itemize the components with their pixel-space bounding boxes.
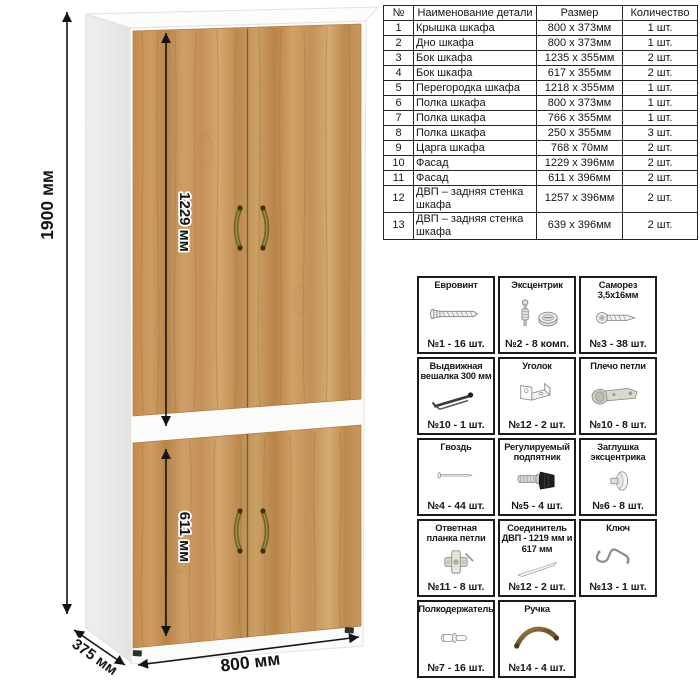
self-tapping-screw-icon	[587, 301, 649, 338]
cell-name: Перегородка шкафа	[414, 81, 537, 96]
hardware-item-title: Евровинт	[434, 280, 477, 290]
cell-qty: 1 шт.	[623, 81, 698, 96]
table-row: 13ДВП – задняя стенка шкафа639 х 396мм2 …	[384, 212, 698, 239]
table-row: 9Царга шкафа768 х 70мм2 шт.	[384, 141, 698, 156]
cell-num: 3	[384, 51, 414, 66]
cabinet-foot-right	[345, 627, 354, 634]
hardware-item-corner-bracket: Уголок №12 - 2 шт.	[498, 357, 576, 435]
hardware-item-cam-cover: Заглушка эксцентрика №6 - 8 шт.	[579, 438, 657, 516]
handle-icon	[506, 614, 568, 662]
cell-num: 4	[384, 66, 414, 81]
table-row: 3Бок шкафа1235 х 355мм2 шт.	[384, 51, 698, 66]
hardware-item-title: Регулируемый подпятник	[501, 442, 573, 463]
hardware-item-title: Ответная планка петли	[420, 523, 492, 544]
cell-num: 8	[384, 126, 414, 141]
assembly-sheet: 1900 мм 1229 мм 611 мм 800 мм 375 мм № Н…	[0, 0, 700, 700]
cell-size: 800 х 373мм	[537, 36, 623, 51]
header-qty: Количество	[623, 6, 698, 21]
hardware-grid: Евровинт №1 - 16 шт. Эксцентрик	[417, 276, 657, 678]
cell-num: 10	[384, 156, 414, 171]
cell-num: 2	[384, 36, 414, 51]
cell-num: 7	[384, 111, 414, 126]
hardware-item-title: Ручка	[524, 604, 550, 614]
hardware-item-key: Ключ №13 - 1 шт.	[579, 519, 657, 597]
eccentric-cam-icon	[505, 290, 569, 338]
cabinet-foot-left	[133, 650, 142, 657]
cell-qty: 3 шт.	[623, 126, 698, 141]
corner-bracket-icon	[507, 371, 567, 419]
adjustable-foot-icon	[507, 463, 567, 500]
cell-name: Полка шкафа	[414, 111, 537, 126]
cell-size: 800 х 373мм	[537, 96, 623, 111]
hardware-item-title: Эксцентрик	[511, 280, 562, 290]
hardware-item-caption: №11 - 8 шт.	[428, 581, 485, 593]
hardware-item-title: Ключ	[606, 523, 630, 533]
hardware-item-hdf-connector: Соединитель ДВП - 1219 мм и 617 мм №12 -…	[498, 519, 576, 597]
pullout-hanger-icon	[424, 382, 488, 419]
cell-qty: 1 шт.	[623, 21, 698, 36]
cell-size: 1235 х 355мм	[537, 51, 623, 66]
cell-num: 5	[384, 81, 414, 96]
hinge-arm-icon	[586, 371, 650, 419]
cell-size: 800 х 373мм	[537, 21, 623, 36]
cell-num: 11	[384, 171, 414, 186]
parts-table: № Наименование детали Размер Количество …	[383, 5, 698, 240]
header-size: Размер	[537, 6, 623, 21]
hardware-item-title: Соединитель ДВП - 1219 мм и 617 мм	[501, 523, 573, 554]
cell-name: Полка шкафа	[414, 96, 537, 111]
cell-name: Бок шкафа	[414, 51, 537, 66]
cell-name: Бок шкафа	[414, 66, 537, 81]
header-name: Наименование детали	[414, 6, 537, 21]
hinge-plate-icon	[426, 544, 486, 581]
cell-num: 13	[384, 212, 414, 239]
wardrobe-illustration: 1900 мм 1229 мм 611 мм 800 мм 375 мм	[0, 0, 400, 700]
dim-label-upper-front: 1229 мм	[176, 192, 193, 252]
cell-size: 250 х 355мм	[537, 126, 623, 141]
hardware-item-pullout-hanger: Выдвижная вешалка 300 мм №10 - 1 шт.	[417, 357, 495, 435]
table-row: 6Полка шкафа800 х 373мм1 шт.	[384, 96, 698, 111]
euro-screw-icon	[422, 290, 490, 338]
nail-icon	[424, 452, 488, 500]
table-header-row: № Наименование детали Размер Количество	[384, 6, 698, 21]
hardware-item-hinge-arm: Плечо петли №10 - 8 шт.	[579, 357, 657, 435]
hardware-item-shelf-pin: Полкодержатель №7 - 16 шт.	[417, 600, 495, 678]
table-row: 10Фасад1229 х 396мм2 шт.	[384, 156, 698, 171]
cell-num: 1	[384, 21, 414, 36]
hardware-item-hinge-plate: Ответная планка петли №11 - 8 шт.	[417, 519, 495, 597]
hardware-item-caption: №7 - 16 шт.	[427, 662, 484, 674]
dim-label-lower-front: 611 мм	[176, 512, 193, 563]
hardware-item-nail: Гвоздь №4 - 44 шт.	[417, 438, 495, 516]
cell-qty: 1 шт.	[623, 36, 698, 51]
hardware-item-euro-screw: Евровинт №1 - 16 шт.	[417, 276, 495, 354]
hardware-item-caption: №5 - 4 шт.	[511, 500, 563, 512]
shelf-pin-icon	[427, 614, 485, 662]
cell-qty: 2 шт.	[623, 66, 698, 81]
hardware-item-title: Выдвижная вешалка 300 мм	[420, 361, 492, 382]
hardware-item-title: Уголок	[522, 361, 552, 371]
hardware-item-title: Заглушка эксцентрика	[582, 442, 654, 463]
table-row: 1Крышка шкафа800 х 373мм1 шт.	[384, 21, 698, 36]
cell-qty: 2 шт.	[623, 186, 698, 213]
cell-name: ДВП – задняя стенка шкафа	[414, 186, 537, 213]
cell-size: 611 х 396мм	[537, 171, 623, 186]
hardware-item-title: Плечо петли	[590, 361, 646, 371]
hardware-item-caption: №14 - 4 шт.	[508, 662, 565, 674]
table-row: 8Полка шкафа250 х 355мм3 шт.	[384, 126, 698, 141]
hardware-item-self-tapping-screw: Саморез 3,5х16мм №3 - 38 шт.	[579, 276, 657, 354]
hardware-item-caption: №3 - 38 шт.	[589, 338, 646, 350]
cell-size: 768 х 70мм	[537, 141, 623, 156]
hardware-item-title: Саморез 3,5х16мм	[582, 280, 654, 301]
cabinet-side-face	[86, 14, 131, 662]
cell-name: Царга шкафа	[414, 141, 537, 156]
cell-name: Дно шкафа	[414, 36, 537, 51]
cell-qty: 2 шт.	[623, 141, 698, 156]
cell-num: 9	[384, 141, 414, 156]
cell-qty: 1 шт.	[623, 111, 698, 126]
cell-name: ДВП – задняя стенка шкафа	[414, 212, 537, 239]
hardware-item-caption: №2 - 8 комп.	[505, 338, 569, 350]
hardware-item-adjustable-foot: Регулируемый подпятник №5 - 4 шт.	[498, 438, 576, 516]
key-icon	[588, 533, 648, 581]
table-row: 2Дно шкафа800 х 373мм1 шт.	[384, 36, 698, 51]
table-row: 12ДВП – задняя стенка шкафа1257 х 396мм2…	[384, 186, 698, 213]
hardware-item-caption: №6 - 8 шт.	[592, 500, 644, 512]
cell-qty: 2 шт.	[623, 212, 698, 239]
hardware-item-title: Полкодержатель	[418, 604, 493, 614]
cell-size: 1218 х 355мм	[537, 81, 623, 96]
cell-size: 1257 х 396мм	[537, 186, 623, 213]
hardware-item-caption: №1 - 16 шт.	[427, 338, 484, 350]
table-row: 7Полка шкафа766 х 355мм1 шт.	[384, 111, 698, 126]
hardware-item-eccentric-cam: Эксцентрик №2 - 8 комп.	[498, 276, 576, 354]
hdf-connector-icon	[505, 554, 569, 581]
cell-size: 639 х 396мм	[537, 212, 623, 239]
cell-size: 1229 х 396мм	[537, 156, 623, 171]
hardware-item-caption: №12 - 2 шт.	[508, 419, 565, 431]
hardware-item-caption: №12 - 2 шт.	[508, 581, 565, 593]
dim-label-height: 1900 мм	[37, 170, 57, 240]
cell-size: 766 х 355мм	[537, 111, 623, 126]
hardware-item-handle: Ручка №14 - 4 шт.	[498, 600, 576, 678]
cell-qty: 1 шт.	[623, 96, 698, 111]
cell-qty: 2 шт.	[623, 51, 698, 66]
cell-qty: 2 шт.	[623, 156, 698, 171]
cell-num: 6	[384, 96, 414, 111]
header-num: №	[384, 6, 414, 21]
cell-name: Крышка шкафа	[414, 21, 537, 36]
cell-size: 617 х 355мм	[537, 66, 623, 81]
hardware-item-caption: №13 - 1 шт.	[589, 581, 646, 593]
cell-qty: 2 шт.	[623, 171, 698, 186]
cell-name: Полка шкафа	[414, 126, 537, 141]
table-row: 4Бок шкафа617 х 355мм2 шт.	[384, 66, 698, 81]
cell-name: Фасад	[414, 156, 537, 171]
table-row: 5Перегородка шкафа1218 х 355мм1 шт.	[384, 81, 698, 96]
cell-num: 12	[384, 186, 414, 213]
table-row: 11Фасад611 х 396мм2 шт.	[384, 171, 698, 186]
cell-name: Фасад	[414, 171, 537, 186]
hardware-item-caption: №4 - 44 шт.	[427, 500, 484, 512]
hardware-item-caption: №10 - 1 шт.	[427, 419, 484, 431]
hardware-item-caption: №10 - 8 шт.	[589, 419, 646, 431]
cam-cover-icon	[590, 463, 646, 500]
hardware-item-title: Гвоздь	[440, 442, 471, 452]
